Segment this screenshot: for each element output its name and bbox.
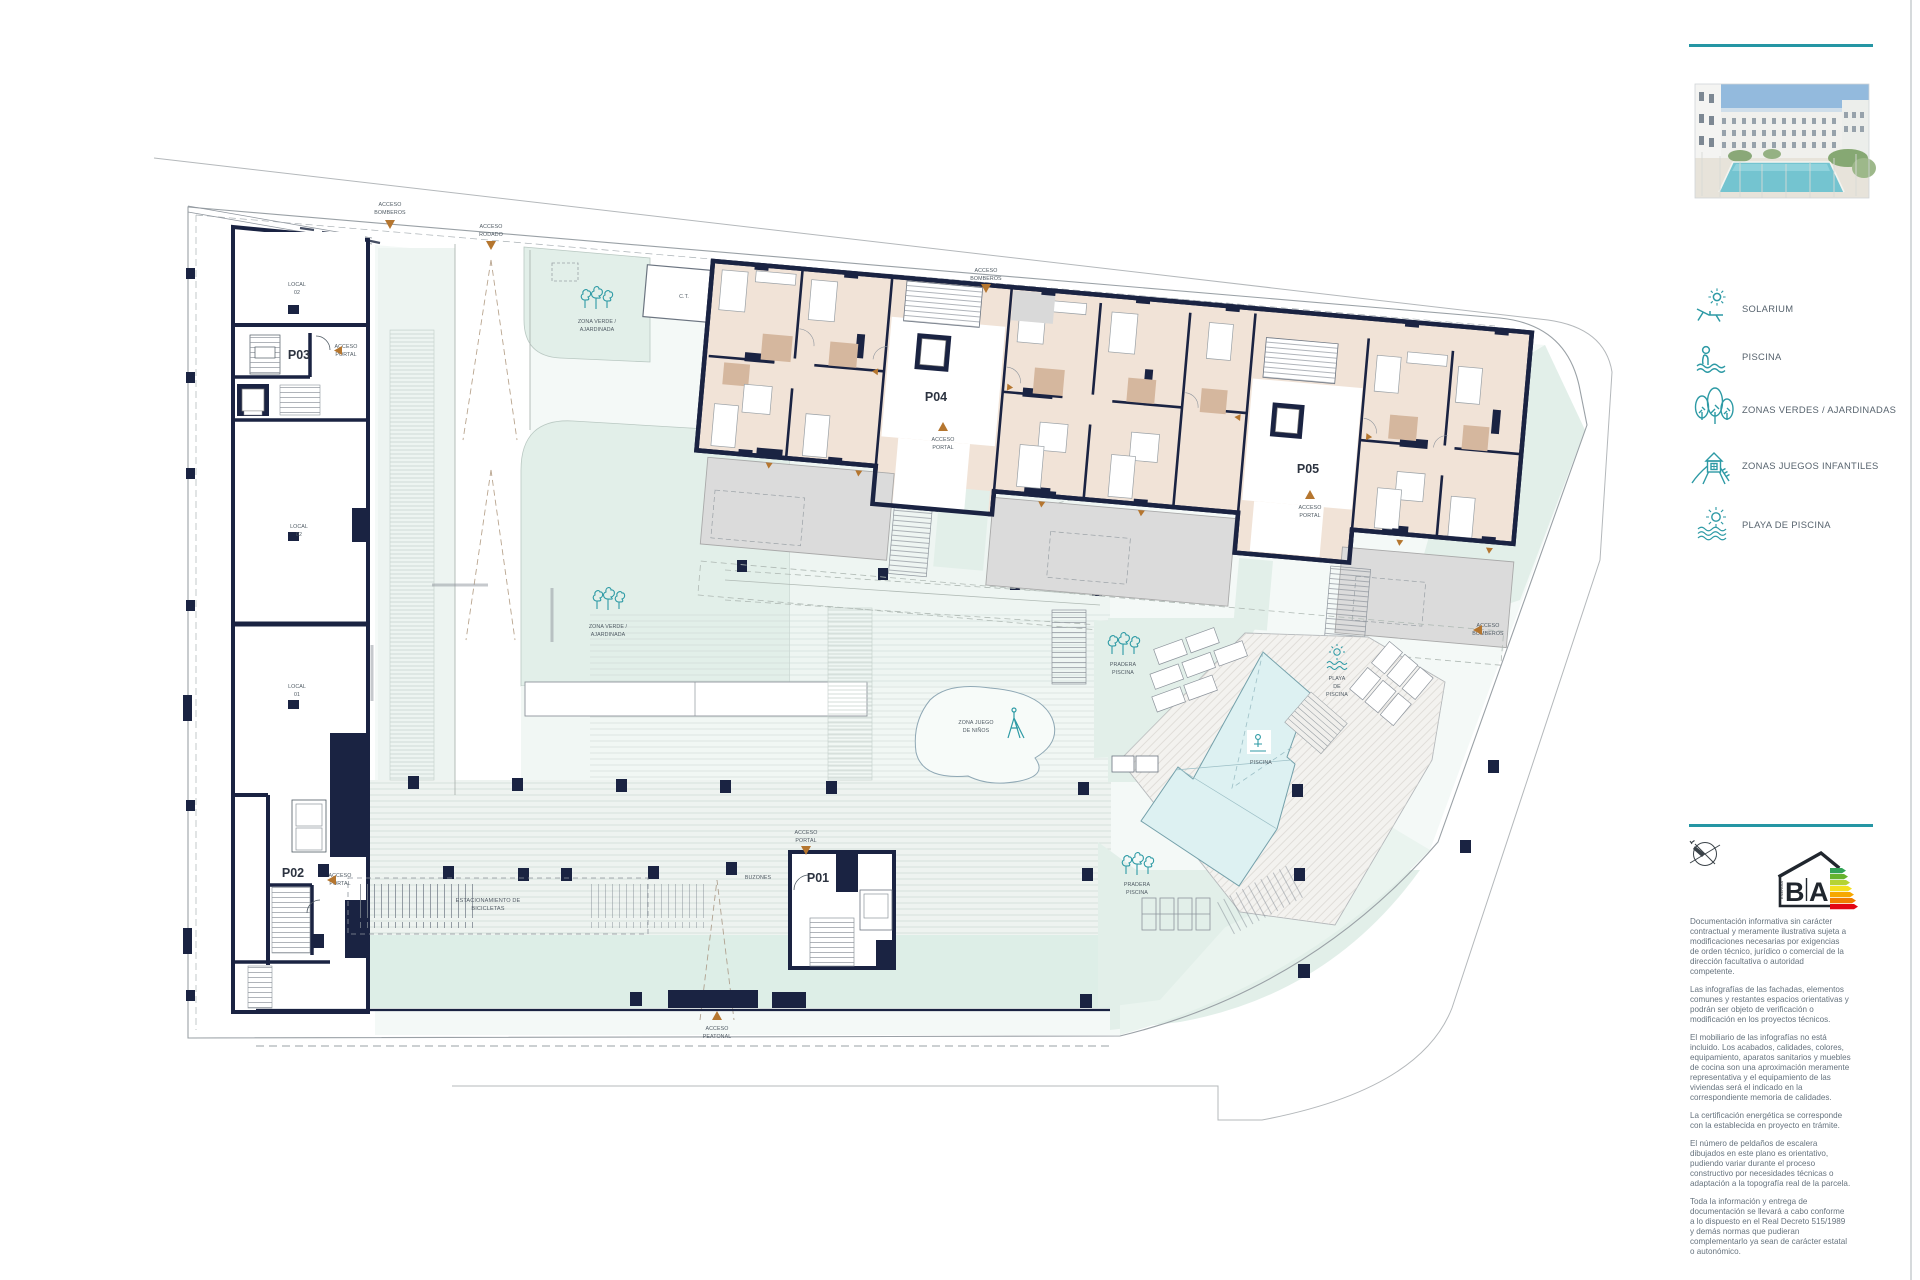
svg-text:ZONAS JUEGOS INFANTILES: ZONAS JUEGOS INFANTILES	[1742, 460, 1879, 471]
svg-text:SOLARIUM: SOLARIUM	[1742, 303, 1793, 314]
svg-text:02: 02	[294, 290, 300, 296]
svg-text:PLAYA: PLAYA	[1329, 676, 1346, 682]
svg-text:equipamiento, aparatos sanitar: equipamiento, aparatos sanitarios y mueb…	[1690, 1053, 1851, 1062]
svg-text:de orden técnico, jurídico o c: de orden técnico, jurídico o comercial d…	[1690, 947, 1844, 956]
svg-text:PRADERA: PRADERA	[1110, 662, 1137, 668]
svg-text:BICICLETAS: BICICLETAS	[471, 906, 504, 912]
svg-text:modificación en los proyectos: modificación en los proyectos técnicos.	[1690, 1015, 1830, 1024]
svg-text:PEATONAL: PEATONAL	[703, 1034, 732, 1040]
svg-text:PRADERA: PRADERA	[1124, 882, 1151, 888]
svg-text:Toda la información y entrega: Toda la información y entrega de	[1690, 1197, 1808, 1206]
svg-text:A: A	[1809, 877, 1829, 907]
svg-text:modificaciones necesarias por: modificaciones necesarias por exigencias	[1690, 937, 1839, 946]
svg-text:01: 01	[294, 692, 300, 698]
svg-text:PORTAL: PORTAL	[795, 838, 816, 844]
svg-text:ACCESO: ACCESO	[1299, 505, 1322, 511]
svg-text:La certificación energética se: La certificación energética se correspon…	[1690, 1111, 1843, 1120]
svg-text:BOMBEROS: BOMBEROS	[970, 276, 1002, 282]
svg-text:LOCAL: LOCAL	[288, 282, 306, 288]
svg-text:ENERGÍA: ENERGÍA	[1779, 881, 1784, 899]
svg-text:PISCINA: PISCINA	[1126, 890, 1148, 896]
svg-text:P02: P02	[282, 866, 304, 880]
svg-text:ACCESO: ACCESO	[975, 268, 998, 274]
svg-text:dibujados en este plano es ori: dibujados en este plano es orientativo,	[1690, 1149, 1828, 1158]
svg-text:viviendas será el indicado en: viviendas será el indicado en la	[1690, 1083, 1803, 1092]
svg-text:PISCINA: PISCINA	[1112, 670, 1134, 676]
svg-text:PISCINA: PISCINA	[1742, 351, 1782, 362]
svg-text:ZONAS VERDES / AJARDINADAS: ZONAS VERDES / AJARDINADAS	[1742, 404, 1896, 415]
svg-text:documentación se llevará a cab: documentación se llevará a cabo conforme	[1690, 1207, 1845, 1216]
svg-text:ACCESO: ACCESO	[480, 224, 503, 230]
svg-text:P03: P03	[288, 348, 310, 362]
svg-text:02: 02	[296, 532, 302, 538]
svg-text:PORTAL: PORTAL	[932, 445, 953, 451]
svg-text:ACCESO: ACCESO	[706, 1026, 729, 1032]
svg-text:competente.: competente.	[1690, 967, 1735, 976]
svg-text:pudiendo variar durante el pro: pudiendo variar durante el proceso	[1690, 1159, 1816, 1168]
svg-text:BOMBEROS: BOMBEROS	[374, 210, 406, 216]
svg-text:El mobiliario de las infografí: El mobiliario de las infografías no está	[1690, 1033, 1827, 1042]
svg-text:o autonómico.: o autonómico.	[1690, 1247, 1741, 1256]
svg-text:correspondiente memoria de cal: correspondiente memoria de calidades.	[1690, 1093, 1832, 1102]
svg-text:y demás normas que pudieran: y demás normas que pudieran	[1690, 1227, 1799, 1236]
svg-text:comunes y restantes espacios o: comunes y restantes espacios orientativa…	[1690, 995, 1850, 1004]
svg-text:podrán ser objeto de verificac: podrán ser objeto de verificación o	[1690, 1005, 1814, 1014]
svg-text:incluido. Los acabados, calida: incluido. Los acabados, calidades, color…	[1690, 1043, 1844, 1052]
svg-text:adaptación a la topografía rea: adaptación a la topografía real de la pa…	[1690, 1179, 1850, 1188]
svg-text:de cocina son una aproximación: de cocina son una aproximación meramente	[1690, 1063, 1850, 1072]
svg-text:El número de peldaños de escal: El número de peldaños de escalera	[1690, 1139, 1818, 1148]
svg-text:Las infografías de las fachada: Las infografías de las fachadas, element…	[1690, 985, 1844, 994]
svg-text:ACCESO: ACCESO	[932, 437, 955, 443]
svg-text:ESTACIONAMIENTO DE: ESTACIONAMIENTO DE	[456, 898, 521, 904]
svg-text:DE NIÑOS: DE NIÑOS	[963, 727, 990, 734]
svg-text:complementarlo ya sean de cará: complementarlo ya sean de carácter estat…	[1690, 1237, 1847, 1246]
svg-text:constructivo por necesidades t: constructivo por necesidades técnicas o	[1690, 1169, 1834, 1178]
svg-text:contractual y meramente ilustr: contractual y meramente ilustrativa suje…	[1690, 927, 1847, 936]
svg-text:LOCAL: LOCAL	[288, 684, 306, 690]
svg-text:con la establecida en proyecto: con la establecida en proyecto en trámit…	[1690, 1121, 1840, 1130]
svg-text:PISCINA: PISCINA	[1250, 760, 1272, 766]
svg-text:ACCESO: ACCESO	[795, 830, 818, 836]
svg-text:C.T.: C.T.	[679, 294, 689, 300]
svg-text:ZONA VERDE /: ZONA VERDE /	[589, 624, 628, 630]
svg-text:DE: DE	[1333, 684, 1341, 690]
svg-text:PISCINA: PISCINA	[1326, 692, 1348, 698]
svg-text:P04: P04	[925, 390, 947, 404]
svg-text:representativa y el equipamien: representativa y el equipamiento de las	[1690, 1073, 1831, 1082]
svg-text:a lo dispuesto en el Real Decr: a lo dispuesto en el Real Decreto 515/19…	[1690, 1217, 1846, 1226]
svg-text:PORTAL: PORTAL	[1299, 513, 1320, 519]
svg-text:RODADO: RODADO	[479, 232, 503, 238]
svg-text:P01: P01	[807, 871, 829, 885]
svg-text:PLAYA DE PISCINA: PLAYA DE PISCINA	[1742, 519, 1831, 530]
svg-text:LOCAL: LOCAL	[290, 524, 308, 530]
svg-text:ACCESO: ACCESO	[379, 202, 402, 208]
svg-text:ZONA VERDE /: ZONA VERDE /	[578, 319, 617, 325]
svg-text:B: B	[1785, 877, 1805, 907]
svg-text:P05: P05	[1297, 462, 1319, 476]
svg-text:AJARDINADA: AJARDINADA	[591, 632, 626, 638]
svg-text:ZONA JUEGO: ZONA JUEGO	[958, 720, 993, 726]
svg-text:Documentación informativa sin: Documentación informativa sin carácter	[1690, 917, 1832, 926]
svg-text:dirección facultativa o autori: dirección facultativa o autoridad	[1690, 957, 1804, 966]
svg-text:AJARDINADA: AJARDINADA	[580, 327, 615, 333]
svg-text:BUZONES: BUZONES	[745, 875, 772, 881]
